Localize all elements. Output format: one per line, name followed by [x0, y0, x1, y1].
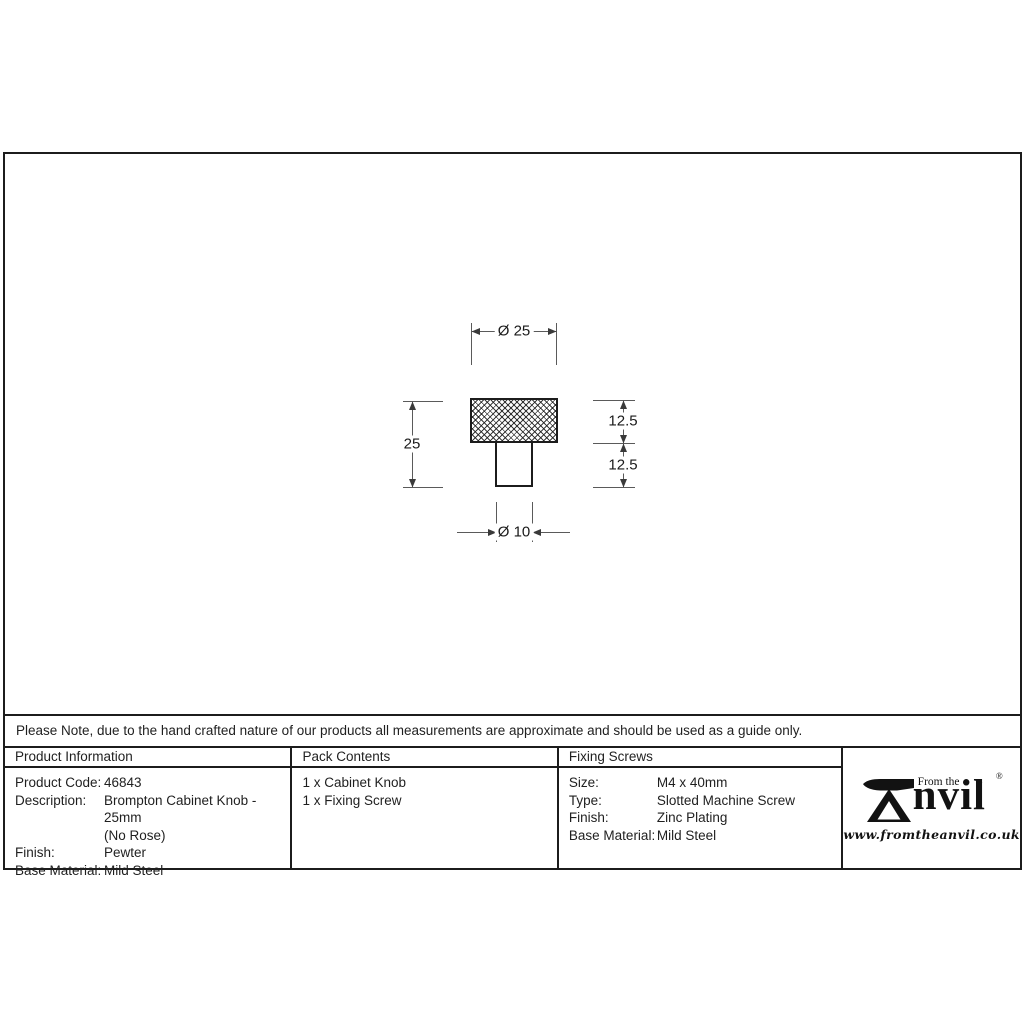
row-label: Description:: [15, 792, 104, 827]
table-row: Base Material: Mild Steel: [15, 862, 290, 880]
technical-drawing: Ø 25 25 12.5 12.5 Ø 10: [3, 152, 1022, 716]
table-row: Product Code: 46843: [15, 774, 290, 792]
pack-contents-header: Pack Contents: [292, 748, 556, 768]
dim-label-head-diameter: Ø 25: [495, 323, 534, 340]
measurement-note: Please Note, due to the hand crafted nat…: [3, 716, 1022, 748]
fixing-screws-header: Fixing Screws: [559, 748, 841, 768]
table-row: (No Rose): [15, 827, 290, 845]
spec-table: Product Information Product Code: 46843 …: [3, 748, 1022, 870]
brand-url: www.fromtheanvil.co.uk: [843, 827, 1020, 842]
row-label: Finish:: [569, 809, 657, 827]
row-value: Pewter: [104, 844, 146, 862]
pack-item: 1 x Cabinet Knob: [302, 774, 556, 792]
row-value: Mild Steel: [657, 827, 716, 845]
anvil-icon: [863, 778, 915, 822]
row-label: [15, 827, 104, 845]
dim-label-total-height: 25: [401, 436, 424, 453]
pack-contents-section: Pack Contents 1 x Cabinet Knob 1 x Fixin…: [292, 748, 558, 868]
dim-label-head-height: 12.5: [605, 413, 640, 430]
row-label: Size:: [569, 774, 657, 792]
knob-head-knurled: [470, 398, 558, 443]
table-row: Base Material: Mild Steel: [569, 827, 841, 845]
registered-mark: ®: [996, 771, 1003, 781]
table-row: Description: Brompton Cabinet Knob - 25m…: [15, 792, 290, 827]
row-value: Zinc Plating: [657, 809, 728, 827]
row-label: Base Material:: [15, 862, 104, 880]
table-row: Finish: Zinc Plating: [569, 809, 841, 827]
pack-item: 1 x Fixing Screw: [302, 792, 556, 810]
dim-label-stem-height: 12.5: [605, 457, 640, 474]
measurement-note-text: Please Note, due to the hand crafted nat…: [16, 723, 802, 738]
fixing-screws-section: Fixing Screws Size: M4 x 40mm Type: Slot…: [559, 748, 843, 868]
product-information-section: Product Information Product Code: 46843 …: [5, 748, 292, 868]
row-value: 46843: [104, 774, 142, 792]
row-value: Slotted Machine Screw: [657, 792, 795, 810]
row-value: Mild Steel: [104, 862, 163, 880]
pack-contents-body: 1 x Cabinet Knob 1 x Fixing Screw: [292, 768, 556, 809]
brand-cell: From the ✦ nvil ® www.fromtheanvil.co.uk: [843, 748, 1020, 868]
knob-stem: [495, 443, 533, 487]
product-information-header: Product Information: [5, 748, 290, 768]
table-row: Size: M4 x 40mm: [569, 774, 841, 792]
table-row: Type: Slotted Machine Screw: [569, 792, 841, 810]
row-value: Brompton Cabinet Knob - 25mm: [104, 792, 290, 827]
brand-name-text: nvil: [913, 772, 986, 820]
product-information-body: Product Code: 46843 Description: Brompto…: [5, 768, 290, 879]
row-label: Type:: [569, 792, 657, 810]
table-row: Finish: Pewter: [15, 844, 290, 862]
row-label: Finish:: [15, 844, 104, 862]
row-value: M4 x 40mm: [657, 774, 728, 792]
row-label: Base Material:: [569, 827, 657, 845]
dim-label-stem-diameter: Ø 10: [495, 524, 534, 541]
row-label: Product Code:: [15, 774, 104, 792]
brand-logo: From the ✦ nvil ®: [863, 775, 1001, 823]
fixing-screws-body: Size: M4 x 40mm Type: Slotted Machine Sc…: [559, 768, 841, 844]
product-spec-sheet: Ø 25 25 12.5 12.5 Ø 10 Please Note, due …: [3, 152, 1022, 870]
row-value: (No Rose): [104, 827, 166, 845]
